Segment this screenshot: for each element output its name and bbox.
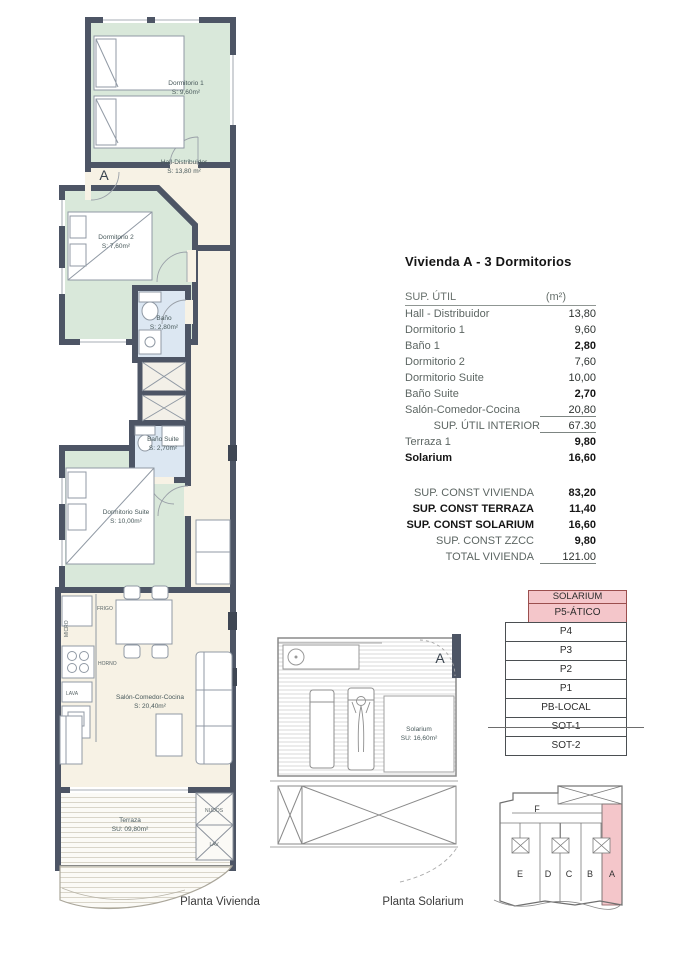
- table-row: Solarium 16,60: [405, 452, 596, 468]
- row-value: 67.30: [540, 420, 596, 433]
- row-label: SUP. CONST TERRAZA: [413, 503, 534, 515]
- table-header: SUP. ÚTIL (m²): [405, 291, 596, 306]
- row-label: Hall - Distribuidor: [405, 308, 489, 320]
- row-label: Salón-Comedor-Cocina: [405, 404, 520, 416]
- caption-planta-vivienda: Planta Vivienda: [150, 896, 290, 908]
- room-area: S: 7,60m²: [102, 243, 131, 250]
- room-label: Dormitorio 1: [168, 80, 204, 87]
- row-value: 83,20: [540, 487, 596, 499]
- row-value: 10,00: [540, 372, 596, 384]
- ground-line: [488, 727, 644, 728]
- room-area: S: 10,00m²: [110, 518, 143, 525]
- keyplan-unit-a: A: [609, 869, 615, 879]
- row-value: 13,80: [540, 308, 596, 320]
- area-table-panel: Vivienda A - 3 Dormitorios SUP. ÚTIL (m²…: [405, 254, 596, 567]
- solarium-label-box: [384, 696, 454, 772]
- wardrobe-icon: [196, 520, 230, 584]
- room-area: SU: 09,80m²: [112, 826, 149, 833]
- table-header-label: SUP. ÚTIL: [405, 291, 456, 303]
- table-row: Terraza 1 9,80: [405, 436, 596, 452]
- room-area: S: 20,40m²: [134, 703, 167, 710]
- row-label: Baño Suite: [405, 388, 459, 400]
- row-value: 2,70: [540, 388, 596, 400]
- level-row-p3: P3: [505, 641, 627, 662]
- pergola-grid: [270, 781, 458, 847]
- row-label: Solarium: [405, 452, 452, 464]
- level-row-sot2: SOT-2: [505, 736, 627, 757]
- table-row: Dormitorio Suite 10,00: [405, 372, 596, 388]
- room-label: Hall-Distribuidor: [161, 159, 208, 166]
- table-row: SUP. CONST VIVIENDA 83,20: [405, 487, 596, 503]
- page-title: Vivienda A - 3 Dormitorios: [405, 254, 596, 269]
- row-value: 16,60: [540, 519, 596, 531]
- row-label: Dormitorio 2: [405, 356, 465, 368]
- building-levels-diagram: SOLARIUM P5-ÁTICO P4 P3 P2 P1 PB-LOCAL S…: [505, 590, 627, 756]
- row-value: 16,60: [540, 452, 596, 464]
- table-header-unit: (m²): [546, 291, 566, 303]
- room-label: Salón-Comedor-Cocina: [116, 694, 184, 701]
- kitchen-label-frigo: FRIGO: [97, 606, 113, 612]
- level-row-p4: P4: [505, 622, 627, 643]
- table-row-total: TOTAL VIVIENDA 121.00: [405, 551, 596, 567]
- keyplan-unit-d: D: [545, 869, 552, 879]
- row-label: Terraza 1: [405, 436, 451, 448]
- bed-icon: [66, 468, 154, 564]
- level-row-p1: P1: [505, 679, 627, 700]
- table-row: Salón-Comedor-Cocina 20,80: [405, 404, 596, 420]
- construction-table: SUP. CONST VIVIENDA 83,20 SUP. CONST TER…: [405, 487, 596, 567]
- room-label: Terraza: [119, 817, 141, 824]
- room-label: Baño Suite: [147, 436, 179, 443]
- row-value: 7,60: [540, 356, 596, 368]
- kitchen-label-lava: LAVA: [66, 691, 79, 697]
- utility-label-nudos: NUDOS: [205, 808, 224, 814]
- row-value: 2,80: [540, 340, 596, 352]
- row-value: 121.00: [540, 551, 596, 564]
- room-area: S: 13,80 m²: [167, 168, 201, 175]
- row-label: Dormitorio Suite: [405, 372, 484, 384]
- level-row-p5-atico: P5-ÁTICO: [528, 603, 627, 624]
- row-label: TOTAL VIVIENDA: [446, 551, 534, 563]
- table-row: Dormitorio 1 9,60: [405, 324, 596, 340]
- table-row: SUP. CONST TERRAZA 11,40: [405, 503, 596, 519]
- keyplan-unit-f: F: [534, 804, 540, 814]
- plan-solarium: A Solarium SU: 16,60m²: [270, 634, 461, 882]
- utility-boxes: [196, 793, 233, 860]
- room-area: S: 9,60m²: [172, 89, 201, 96]
- entrance-marker: A: [99, 167, 109, 183]
- room-label: Baño: [156, 315, 172, 322]
- room-label: Dormitorio Suite: [103, 509, 150, 516]
- kitchen-label-micro: MICRO: [64, 620, 70, 637]
- row-label: Baño 1: [405, 340, 440, 352]
- row-label: SUP. CONST ZZCC: [436, 535, 534, 547]
- caption-planta-solarium: Planta Solarium: [353, 896, 493, 908]
- solarium-wall: [452, 634, 461, 678]
- keyplan-unit-b: B: [587, 869, 593, 879]
- room-label: Solarium: [406, 726, 432, 733]
- table-row: SUP. CONST ZZCC 9,80: [405, 535, 596, 551]
- row-value: 9,80: [540, 436, 596, 448]
- table-row: Baño Suite 2,70: [405, 388, 596, 404]
- level-row-p2: P2: [505, 660, 627, 681]
- plan-vivienda: Dormitorio 1 S: 9,60m² Hall-Distribuidor…: [58, 17, 237, 908]
- table-row-subtotal: SUP. ÚTIL INTERIOR 67.30: [405, 420, 596, 436]
- solarium-marker: A: [435, 650, 445, 666]
- keyplan-unit-c: C: [566, 869, 573, 879]
- table-row: Dormitorio 2 7,60: [405, 356, 596, 372]
- keyplan: F E D C B A: [494, 786, 622, 909]
- row-value: 9,80: [540, 535, 596, 547]
- row-label: SUP. CONST VIVIENDA: [414, 487, 534, 499]
- keyplan-unit-a-highlight: [602, 804, 622, 905]
- row-value: 9,60: [540, 324, 596, 336]
- table-row: SUP. CONST SOLARIUM 16,60: [405, 519, 596, 535]
- room-area: SU: 16,60m²: [401, 735, 438, 742]
- keyplan-unit-e: E: [517, 869, 523, 879]
- table-row: Hall - Distribuidor 13,80: [405, 308, 596, 324]
- table-row: Baño 1 2,80: [405, 340, 596, 356]
- row-label: Dormitorio 1: [405, 324, 465, 336]
- room-area: S: 2,70m²: [149, 445, 178, 452]
- room-label: Dormitorio 2: [98, 234, 134, 241]
- kitchen-label-horno: HORNO: [98, 661, 117, 667]
- brochure-page: Dormitorio 1 S: 9,60m² Hall-Distribuidor…: [0, 0, 678, 960]
- utility-label-lav: LAV: [209, 842, 219, 848]
- row-label: SUP. ÚTIL INTERIOR: [434, 420, 540, 432]
- sketch-curve: [400, 846, 458, 882]
- room-area: S: 2,80m²: [150, 324, 179, 331]
- level-row-pb-local: PB-LOCAL: [505, 698, 627, 719]
- row-label: SUP. CONST SOLARIUM: [406, 519, 534, 531]
- row-value: 11,40: [540, 503, 596, 515]
- row-value: 20,80: [540, 404, 596, 417]
